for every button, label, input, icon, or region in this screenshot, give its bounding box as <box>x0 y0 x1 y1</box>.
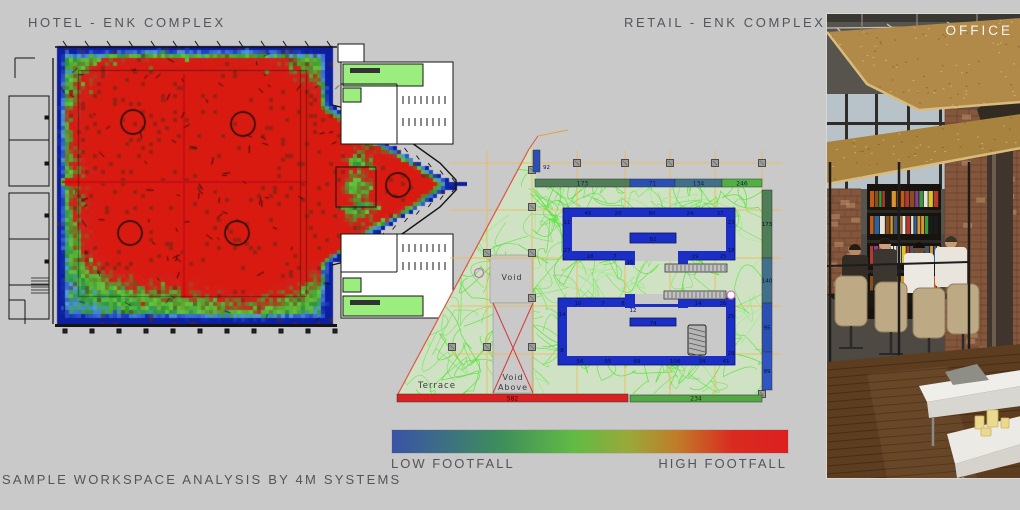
svg-text:37: 37 <box>717 211 724 217</box>
svg-text:16: 16 <box>627 260 634 266</box>
svg-text:14: 14 <box>695 301 702 307</box>
svg-text:95: 95 <box>764 326 771 332</box>
svg-text:99: 99 <box>764 369 771 375</box>
svg-text:173: 173 <box>762 222 773 228</box>
svg-text:25: 25 <box>728 314 735 320</box>
retail-floorplan-svg: 1737113424692173140959958223445208024371… <box>390 128 790 420</box>
office-photo: OFFICE <box>826 13 1020 479</box>
hotel-panel-title: HOTEL - ENK COMPLEX <box>28 15 226 30</box>
svg-text:29: 29 <box>728 351 735 357</box>
svg-text:8: 8 <box>560 348 564 354</box>
legend-high-label: HIGH FOOTFALL <box>658 456 787 471</box>
svg-text:582: 582 <box>507 396 519 403</box>
office-panel-title: OFFICE <box>946 23 1014 38</box>
svg-text:12: 12 <box>630 308 637 314</box>
svg-text:23: 23 <box>728 220 735 226</box>
svg-text:19: 19 <box>692 254 699 260</box>
legend-low-label: LOW FOOTFALL <box>391 456 515 471</box>
svg-text:18: 18 <box>728 248 735 254</box>
retail-footfall-plan: 1737113424692173140959958223445208024371… <box>390 128 790 420</box>
svg-text:34: 34 <box>699 359 706 365</box>
svg-text:56: 56 <box>577 359 584 365</box>
svg-text:27: 27 <box>564 248 571 254</box>
svg-text:25: 25 <box>720 254 727 260</box>
svg-text:18: 18 <box>587 254 594 260</box>
svg-text:173: 173 <box>577 181 589 188</box>
svg-text:92: 92 <box>543 165 550 171</box>
footfall-legend: LOW FOOTFALL HIGH FOOTFALL <box>391 429 787 471</box>
svg-text:140: 140 <box>762 279 773 285</box>
svg-text:234: 234 <box>690 396 702 403</box>
svg-text:8: 8 <box>621 301 625 307</box>
svg-text:80: 80 <box>649 211 656 217</box>
svg-text:10: 10 <box>575 301 582 307</box>
svg-text:24: 24 <box>687 211 694 217</box>
svg-text:11: 11 <box>564 220 571 226</box>
svg-text:55: 55 <box>605 359 612 365</box>
retail-panel-title: RETAIL - ENK COMPLEX <box>624 15 826 30</box>
svg-text:7: 7 <box>613 254 617 260</box>
footer-caption: SAMPLE WORKSPACE ANALYSIS BY 4M SYSTEMS <box>2 472 401 487</box>
svg-text:14: 14 <box>559 312 566 318</box>
slide-canvas: HOTEL - ENK COMPLEX RETAIL - ENK COMPLEX… <box>0 0 1020 510</box>
retail-plan-label: Void <box>502 373 523 382</box>
svg-text:108: 108 <box>670 359 681 365</box>
retail-plan-label: Void <box>501 273 522 282</box>
retail-plan-label: Above <box>498 383 528 392</box>
svg-text:69: 69 <box>634 359 641 365</box>
svg-text:45: 45 <box>585 211 592 217</box>
svg-text:82: 82 <box>650 237 657 243</box>
svg-text:74: 74 <box>650 321 657 327</box>
svg-text:41: 41 <box>723 359 730 365</box>
svg-text:7: 7 <box>601 301 605 307</box>
svg-text:20: 20 <box>615 211 622 217</box>
svg-text:134: 134 <box>693 181 705 188</box>
svg-text:71: 71 <box>649 181 657 188</box>
svg-text:26: 26 <box>720 301 727 307</box>
svg-text:246: 246 <box>736 181 748 188</box>
footfall-gradient-bar <box>391 429 789 454</box>
office-interior-illustration <box>827 14 1020 478</box>
retail-plan-label: Terrace <box>417 381 456 391</box>
